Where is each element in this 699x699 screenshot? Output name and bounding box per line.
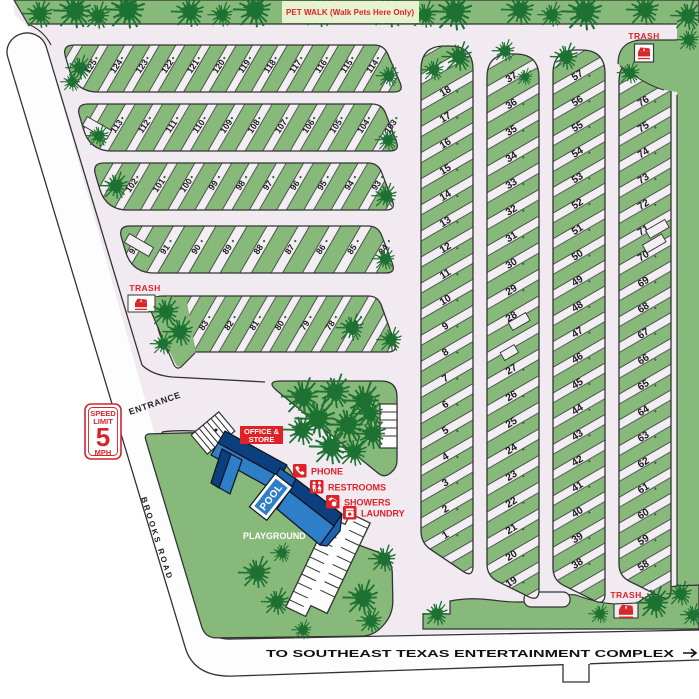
svg-text:PLAYGROUND: PLAYGROUND [243,531,306,541]
svg-text:TO SOUTHEAST TEXAS ENTERTAINME: TO SOUTHEAST TEXAS ENTERTAINMENT COMPLEX [266,648,674,660]
svg-text:MPH: MPH [95,448,112,457]
svg-text:PHONE: PHONE [311,466,343,476]
svg-text:SHOWERS: SHOWERS [344,497,391,507]
svg-text:TRASH: TRASH [628,31,659,41]
svg-text:LAUNDRY: LAUNDRY [361,508,405,518]
svg-text:RESTROOMS: RESTROOMS [328,482,386,492]
svg-text:TRASH: TRASH [610,590,641,600]
svg-text:TRASH: TRASH [129,283,160,293]
svg-text:STORE: STORE [249,435,275,444]
svg-text:PET WALK (Walk Pets Here Only): PET WALK (Walk Pets Here Only) [286,8,414,17]
